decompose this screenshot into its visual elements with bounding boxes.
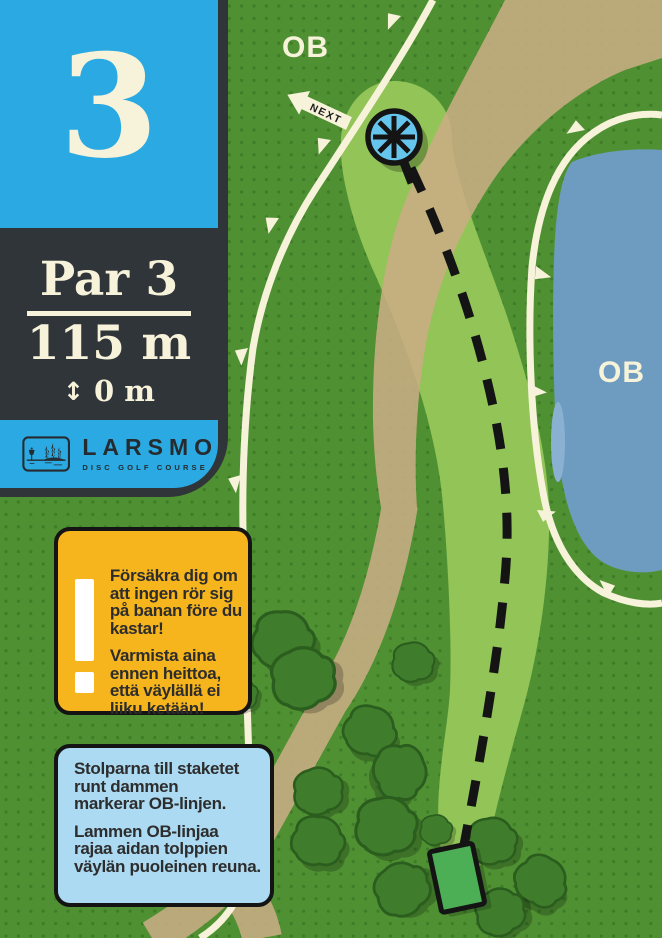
- elevation-value: 0 m: [94, 374, 155, 408]
- ob-label-top: OB: [282, 31, 329, 64]
- ob-label-pond: OB: [598, 356, 645, 389]
- course-logo: LARSMO DISC GOLF COURSE: [0, 420, 218, 488]
- ob-rule-box: Stolparna till staketet runt dammen mark…: [54, 744, 274, 907]
- warning-text: Försäkra dig om att ingen rör sig på ban…: [110, 567, 242, 711]
- ob-rule-text: Stolparna till staketet runt dammen mark…: [74, 760, 266, 875]
- logo-lake-scene-icon: [22, 428, 70, 480]
- hole-stats-box: Par 3 115 m ↕ 0 m: [0, 228, 218, 420]
- hole-number: 3: [60, 36, 159, 192]
- ob-rule-paragraph-fi: Lammen OB-linjaa rajaa aidan tolppien vä…: [74, 823, 266, 876]
- hole-number-box: 3: [0, 0, 218, 228]
- bush: [356, 797, 417, 854]
- safety-warning-box: Försäkra dig om att ingen rör sig på ban…: [54, 527, 252, 715]
- bush: [420, 815, 452, 845]
- warning-paragraph-fi: Varmista aina ennen heittoa, että väyläl…: [110, 647, 242, 717]
- exclamation-icon: [72, 567, 98, 711]
- distance-value: 115 m: [0, 320, 218, 367]
- logo-name: LARSMO: [82, 436, 218, 459]
- hole-info-panel: 3 Par 3 115 m ↕ 0 m: [0, 0, 228, 497]
- bush: [392, 642, 434, 681]
- logo-text: LARSMO DISC GOLF COURSE: [82, 436, 218, 472]
- logo-subtitle: DISC GOLF COURSE: [82, 463, 218, 472]
- warning-paragraph-sv: Försäkra dig om att ingen rör sig på ban…: [110, 567, 242, 637]
- par-value: Par 3: [0, 256, 218, 303]
- hole-sign: OB OB: [0, 0, 662, 938]
- elevation-arrow-icon: ↕: [63, 377, 84, 406]
- ob-rule-paragraph-sv: Stolparna till staketet runt dammen mark…: [74, 760, 266, 813]
- elevation-row: ↕ 0 m: [0, 374, 218, 408]
- pond-shallow-edge: [551, 402, 565, 482]
